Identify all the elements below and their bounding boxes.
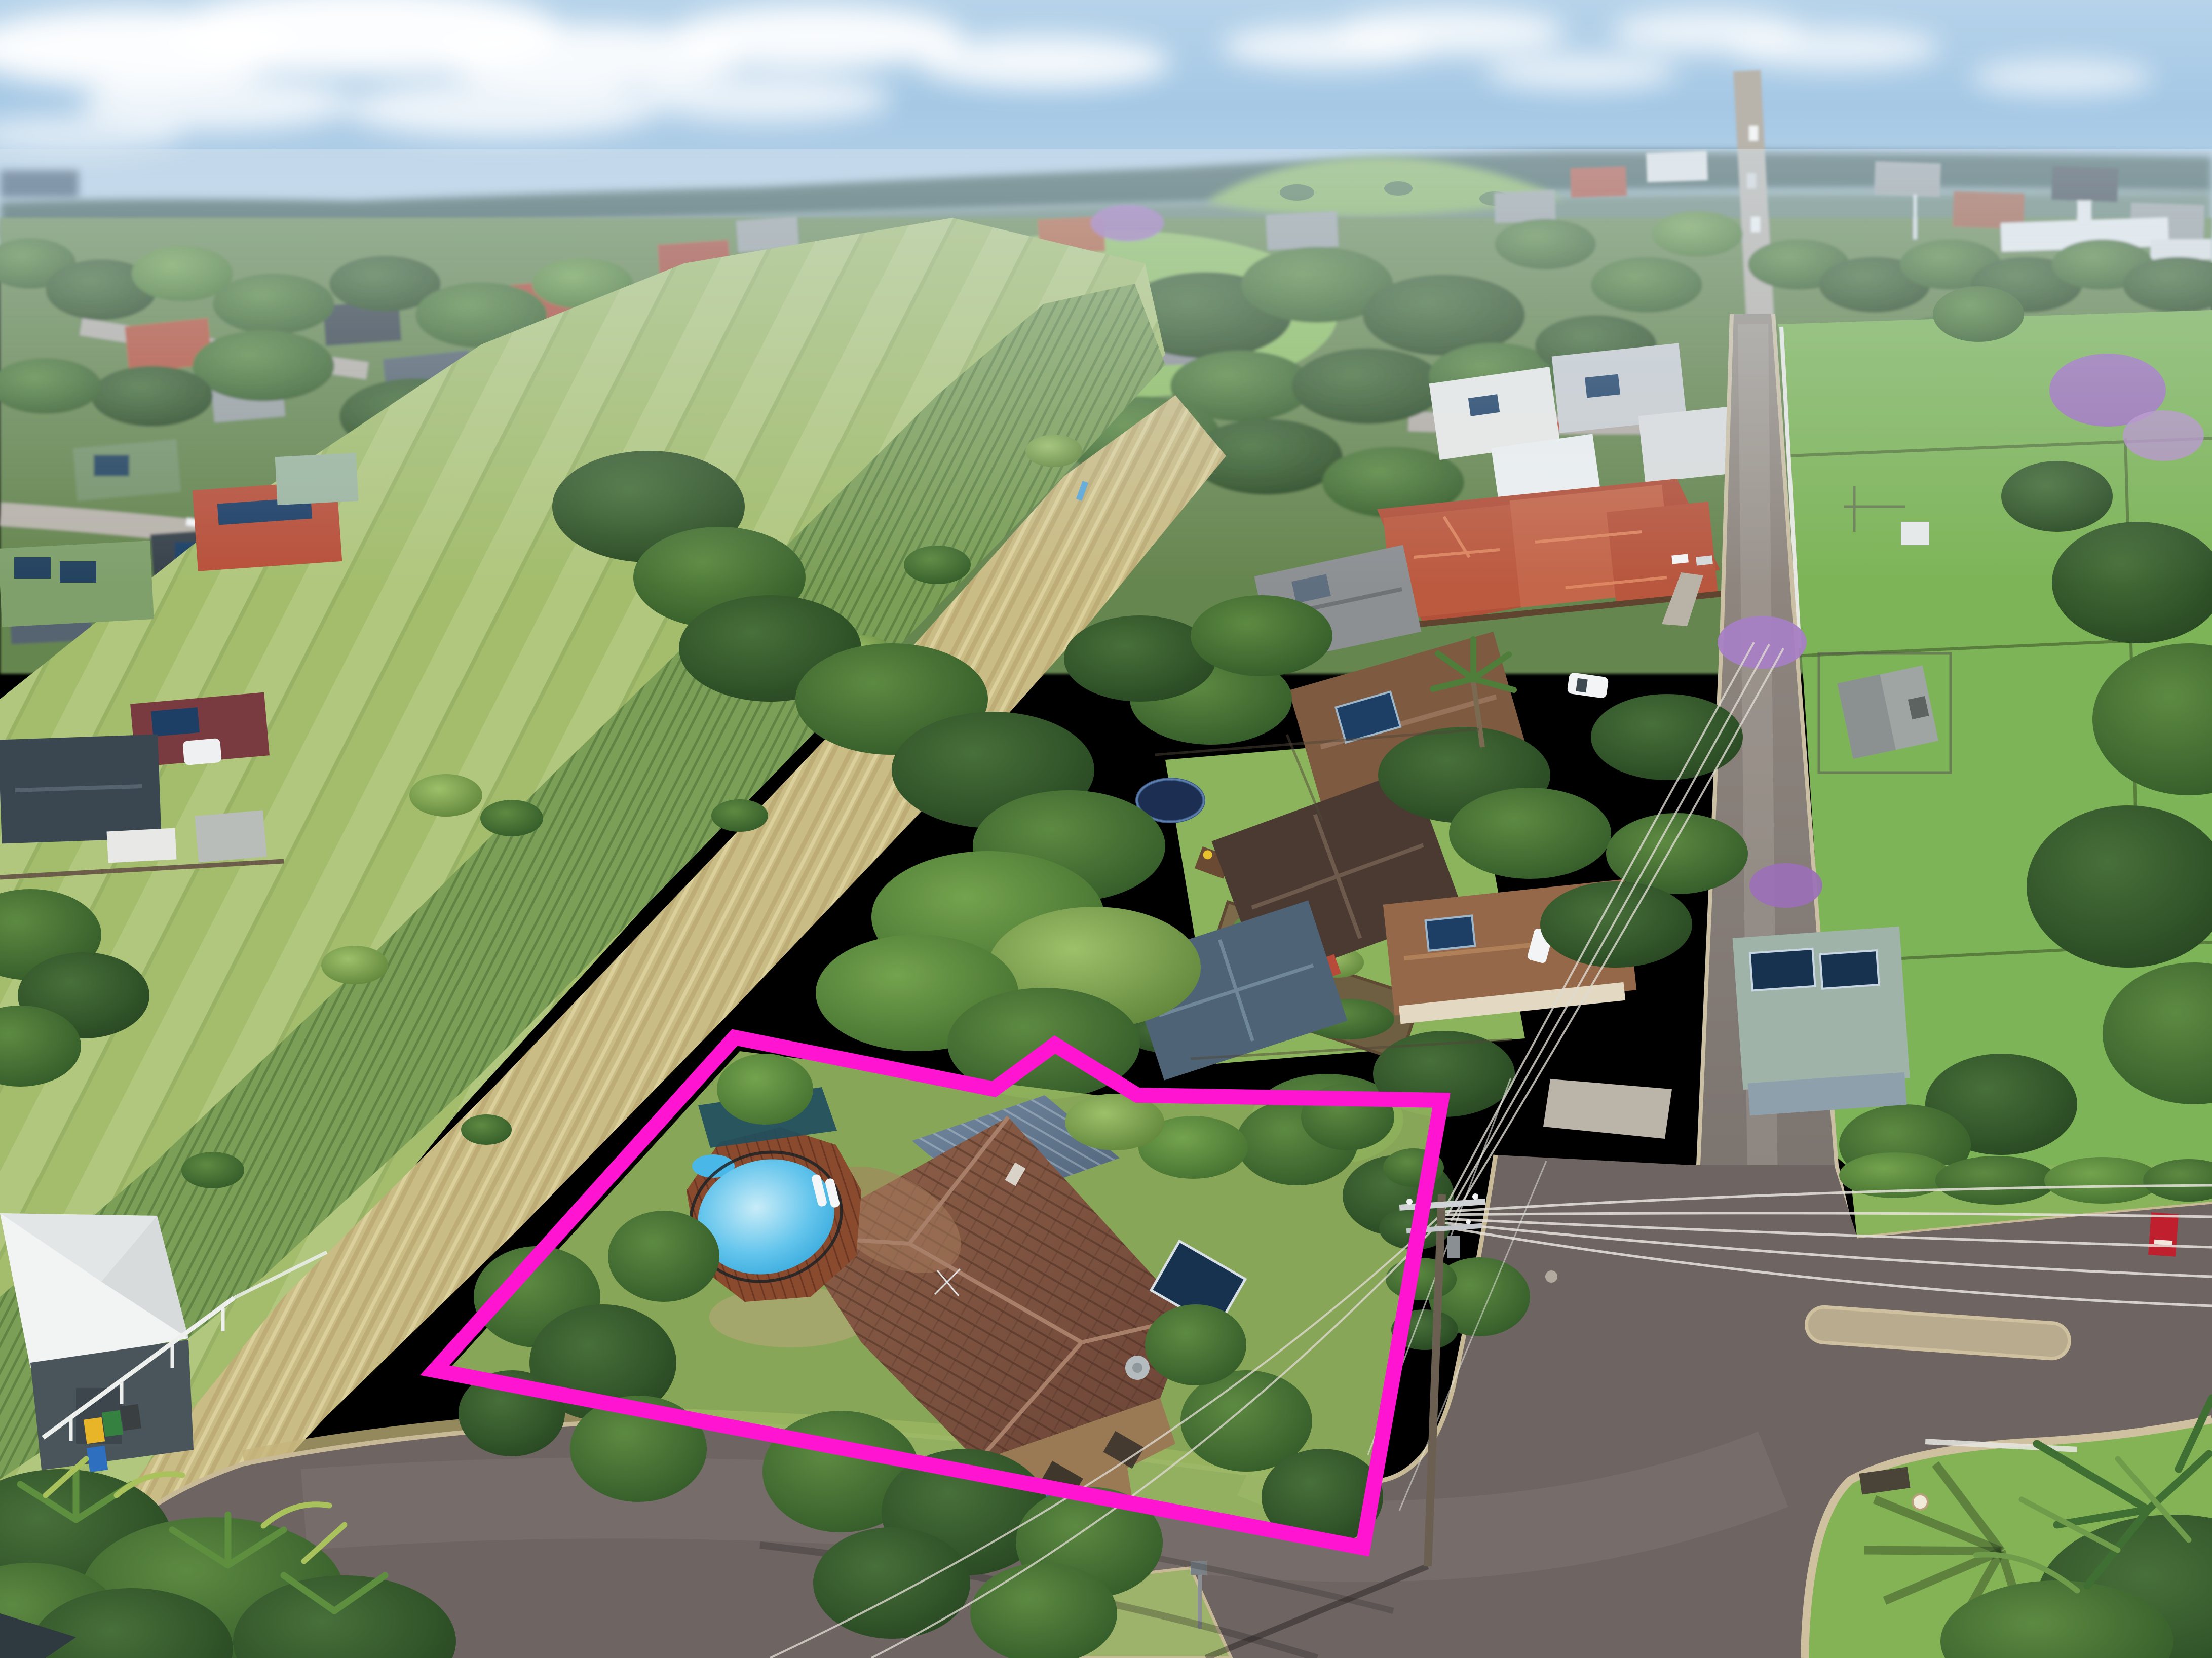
sprinkler-cap <box>1913 1494 1928 1510</box>
solar-array <box>1820 950 1879 989</box>
transformer-box <box>1447 1236 1460 1258</box>
caravan <box>182 738 222 765</box>
neighbor-driveway <box>1543 1079 1672 1139</box>
for-sale-sign <box>2148 1212 2179 1257</box>
solar-panel <box>1426 915 1475 950</box>
aerial-photo <box>0 0 2212 1658</box>
jacaranda-tree <box>1718 616 1807 669</box>
manhole <box>1545 1270 1557 1283</box>
garden-shed <box>195 810 267 862</box>
solar-array <box>1750 949 1815 990</box>
jacaranda-tree <box>1749 863 1822 908</box>
white-suv <box>1567 672 1609 699</box>
atmospheric-haze <box>0 149 2212 585</box>
teal-solar-house <box>1733 927 1912 1116</box>
white-awning <box>106 828 176 863</box>
